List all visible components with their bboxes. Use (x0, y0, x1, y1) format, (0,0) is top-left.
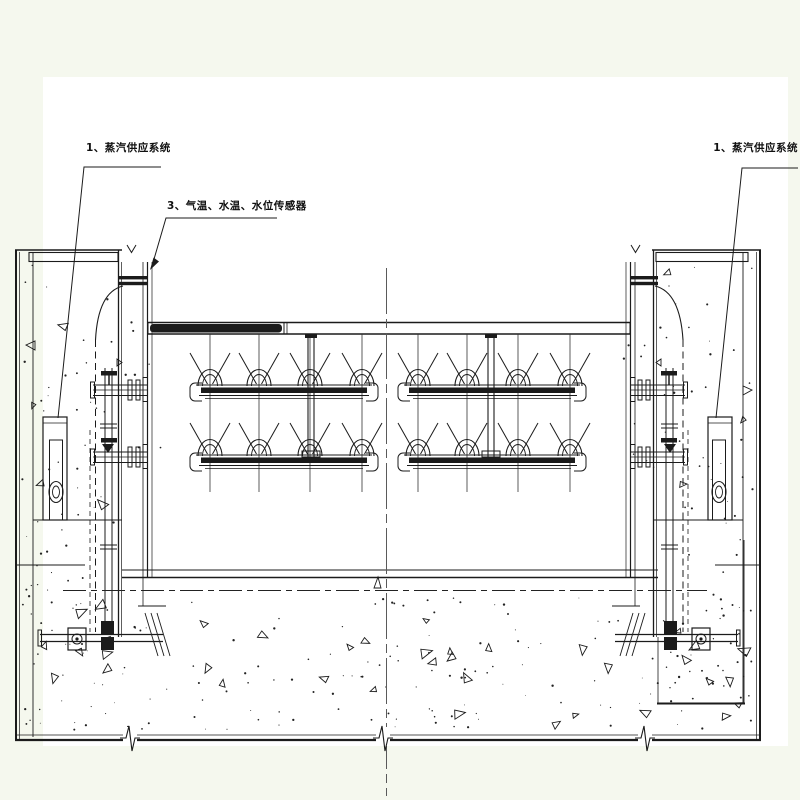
label-steam-supply-left: 1、蒸汽供应系统 (86, 141, 171, 154)
label-steam-supply-right: 1、蒸汽供应系统 (713, 141, 798, 154)
manifold-insulated-section (150, 324, 282, 333)
label-sensors: 3、气温、水温、水位传感器 (167, 199, 307, 212)
gate-heating-system-drawing: 1、蒸汽供应系统 3、气温、水温、水位传感器 1、蒸汽供应系统 (0, 0, 800, 800)
sensor-conduit (118, 276, 148, 279)
sensor-conduit (630, 276, 658, 279)
